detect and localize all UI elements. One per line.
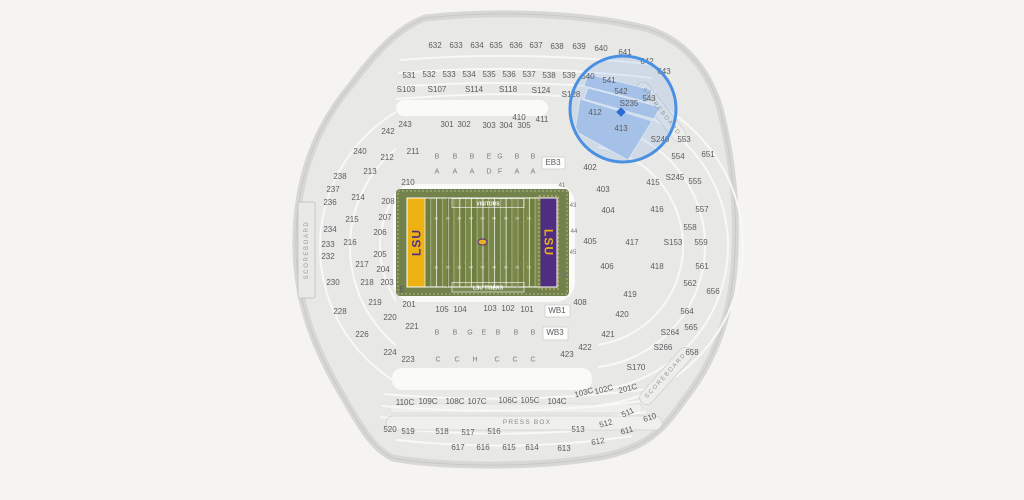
section-label[interactable]: 533 — [442, 71, 455, 79]
row-letter: C — [530, 357, 535, 364]
section-label[interactable]: 541 — [602, 77, 615, 85]
section-label[interactable]: 651 — [701, 151, 714, 159]
row-letter: B — [515, 154, 520, 161]
section-label[interactable]: 237 — [326, 186, 339, 194]
section-label[interactable]: 234 — [323, 226, 336, 234]
section-label[interactable]: S240 — [651, 136, 670, 144]
section-label[interactable]: S128 — [562, 91, 581, 99]
section-label[interactable]: 554 — [671, 153, 684, 161]
section-label[interactable]: 402 — [583, 164, 596, 172]
section-label[interactable]: 565 — [684, 324, 697, 332]
section-label[interactable]: 304 — [499, 122, 512, 130]
section-label[interactable]: 302 — [457, 121, 470, 129]
section-label[interactable]: 204 — [376, 266, 389, 274]
section-label[interactable]: 640 — [594, 45, 607, 53]
section-label[interactable]: 636 — [509, 42, 522, 50]
section-label[interactable]: S235 — [620, 100, 639, 108]
section-label[interactable]: 406 — [600, 263, 613, 271]
section-label[interactable]: 537 — [522, 71, 535, 79]
row-letter: G — [467, 330, 472, 337]
section-label[interactable]: 519 — [401, 428, 414, 436]
section-label[interactable]: 417 — [625, 239, 638, 247]
row-letter: G — [497, 154, 502, 161]
section-label[interactable]: 553 — [677, 136, 690, 144]
scoreboard-label: SCOREBOARD — [304, 221, 310, 280]
section-label[interactable]: 105C — [520, 397, 539, 405]
section-label[interactable]: 512 — [599, 418, 614, 429]
section-label[interactable]: 419 — [623, 291, 636, 299]
section-label[interactable]: 639 — [572, 43, 585, 51]
section-label[interactable]: 516 — [487, 428, 500, 436]
section-label[interactable]: 539 — [562, 72, 575, 80]
section-label[interactable]: 105 — [435, 306, 448, 314]
row-letter: D — [486, 169, 491, 176]
section-label[interactable]: 242 — [381, 128, 394, 136]
section-label[interactable]: 238 — [333, 173, 346, 181]
section-label[interactable]: 102C — [594, 384, 615, 397]
scoreboard-label: SCOREBOARD — [641, 87, 682, 137]
section-label[interactable]: 412 — [588, 109, 601, 117]
section-label[interactable]: 561 — [695, 263, 708, 271]
section-label[interactable]: 214 — [351, 194, 364, 202]
section-label[interactable]: 610 — [642, 412, 657, 424]
row-letter: B — [531, 330, 536, 337]
row-letter: A — [515, 169, 520, 176]
section-label[interactable]: 611 — [620, 425, 634, 436]
section-label[interactable]: 405 — [583, 238, 596, 246]
section-label[interactable]: 203 — [380, 279, 393, 287]
section-label[interactable]: EB3 — [545, 159, 560, 167]
row-letter: C — [435, 357, 440, 364]
row-letter: A — [453, 169, 458, 176]
section-label[interactable]: 423 — [560, 351, 573, 359]
section-label[interactable]: 220 — [383, 314, 396, 322]
section-label[interactable]: S245 — [666, 174, 685, 182]
section-label[interactable]: 110C — [396, 399, 415, 407]
section-label[interactable]: 632 — [428, 42, 441, 50]
row-letter: B — [453, 154, 458, 161]
row-letter: B — [470, 154, 475, 161]
section-label[interactable]: S114 — [465, 86, 483, 94]
section-label[interactable]: 223 — [401, 356, 414, 364]
section-label[interactable]: 101 — [520, 306, 533, 314]
section-label[interactable]: 243 — [398, 121, 411, 129]
section-label[interactable]: 520 — [383, 426, 396, 434]
section-label[interactable]: 104C — [547, 398, 566, 406]
portal-number: 46 — [561, 273, 568, 279]
section-label[interactable]: 408 — [573, 299, 586, 307]
portal-number: 45 — [570, 250, 577, 256]
portal-number: 43 — [570, 203, 577, 209]
row-letter: B — [453, 330, 458, 337]
row-letter: E — [482, 330, 487, 337]
section-label[interactable]: 226 — [355, 331, 368, 339]
section-label[interactable]: 555 — [688, 178, 701, 186]
section-label[interactable]: 420 — [615, 311, 628, 319]
section-label[interactable]: WB3 — [546, 329, 563, 337]
section-label[interactable]: 230 — [326, 279, 339, 287]
section-label[interactable]: 109C — [418, 398, 437, 406]
section-label[interactable]: 656 — [706, 288, 719, 296]
section-label[interactable]: 642 — [640, 58, 653, 66]
section-label[interactable]: 538 — [542, 72, 555, 80]
section-label[interactable]: 612 — [591, 437, 606, 447]
row-letter: A — [435, 169, 440, 176]
section-label[interactable]: 559 — [694, 239, 707, 247]
section-label[interactable]: 513 — [571, 426, 584, 434]
section-label[interactable]: E — [399, 286, 404, 294]
section-label[interactable]: 207 — [378, 214, 391, 222]
section-label[interactable]: S124 — [532, 87, 551, 95]
row-letter: C — [454, 357, 459, 364]
section-label[interactable]: 232 — [321, 253, 334, 261]
section-label[interactable]: 422 — [578, 344, 591, 352]
press-box-label: PRESS BOX — [503, 420, 551, 427]
section-label[interactable]: 210 — [401, 179, 414, 187]
row-letter: F — [498, 169, 502, 176]
section-label[interactable]: 613 — [557, 445, 570, 453]
section-label[interactable]: 224 — [383, 349, 396, 357]
section-label[interactable]: 517 — [461, 429, 474, 437]
section-label[interactable]: 404 — [601, 207, 614, 215]
section-labels-layer: 6326336346356366376386396406416426435315… — [0, 0, 1024, 500]
section-label[interactable]: 637 — [529, 42, 542, 50]
section-label[interactable]: 201C — [618, 383, 639, 396]
section-label[interactable]: 221 — [405, 323, 418, 331]
section-label[interactable]: 240 — [353, 148, 366, 156]
section-label[interactable]: 413 — [614, 125, 627, 133]
section-label[interactable]: 641 — [618, 49, 631, 57]
row-letter: B — [514, 330, 519, 337]
section-label[interactable]: 211 — [407, 148, 420, 156]
section-label[interactable]: 536 — [502, 71, 515, 79]
section-label[interactable]: 228 — [333, 308, 346, 316]
section-label[interactable]: 212 — [380, 154, 393, 162]
scoreboard-label: SCOREBOARD — [644, 352, 688, 400]
section-label[interactable]: 534 — [462, 71, 475, 79]
section-label[interactable]: 634 — [470, 42, 483, 50]
section-label[interactable]: 557 — [695, 206, 708, 214]
row-letter: E — [487, 154, 492, 161]
section-label[interactable]: 216 — [343, 239, 356, 247]
section-label[interactable]: 206 — [373, 229, 386, 237]
section-label[interactable]: 615 — [502, 444, 515, 452]
section-label[interactable]: S103 — [397, 86, 416, 94]
section-label[interactable]: S153 — [664, 239, 683, 247]
row-letter: B — [435, 154, 440, 161]
section-label[interactable]: 617 — [451, 444, 464, 452]
row-letter: A — [470, 169, 475, 176]
section-label[interactable]: S170 — [627, 364, 646, 372]
section-label[interactable]: 217 — [355, 261, 368, 269]
section-label[interactable]: 205 — [373, 251, 386, 259]
section-label[interactable]: 213 — [363, 168, 376, 176]
section-label[interactable]: 201 — [402, 301, 415, 309]
row-letter: B — [435, 330, 440, 337]
section-label[interactable]: 233 — [321, 241, 334, 249]
row-letter: B — [496, 330, 501, 337]
section-label[interactable]: 511 — [621, 407, 636, 420]
section-label[interactable]: 236 — [323, 199, 336, 207]
row-letter: C — [512, 357, 517, 364]
section-label[interactable]: 558 — [683, 224, 696, 232]
seating-map-canvas[interactable]: 101020203030404050504040303020201010 VIS… — [0, 0, 1024, 500]
section-label[interactable]: 532 — [422, 71, 435, 79]
section-label[interactable]: 562 — [683, 280, 696, 288]
section-label[interactable]: 540 — [581, 73, 594, 81]
section-label[interactable]: 108C — [445, 398, 464, 406]
section-label[interactable]: 103C — [574, 387, 595, 400]
section-label[interactable]: 421 — [601, 331, 614, 339]
section-label[interactable]: 219 — [368, 299, 381, 307]
section-label[interactable]: S118 — [499, 86, 517, 94]
section-label[interactable]: WB1 — [548, 307, 565, 315]
section-label[interactable]: S264 — [661, 329, 680, 337]
row-letter: C — [494, 357, 499, 364]
section-label[interactable]: 518 — [435, 428, 448, 436]
section-label[interactable]: 416 — [650, 206, 663, 214]
section-label[interactable]: 208 — [381, 198, 394, 206]
row-letter: B — [531, 154, 536, 161]
section-label[interactable]: 102 — [501, 305, 514, 313]
section-label[interactable]: 103 — [483, 305, 496, 313]
section-label[interactable]: 535 — [482, 71, 495, 79]
section-label[interactable]: 564 — [680, 308, 693, 316]
section-label[interactable]: 107C — [467, 398, 486, 406]
section-label[interactable]: 301 — [440, 121, 453, 129]
section-label[interactable]: 616 — [476, 444, 489, 452]
section-label[interactable]: 415 — [646, 179, 659, 187]
section-label[interactable]: S266 — [654, 344, 673, 352]
section-label[interactable]: 215 — [345, 216, 358, 224]
section-label[interactable]: 614 — [525, 444, 538, 452]
section-label[interactable]: 635 — [489, 42, 502, 50]
portal-number: 44 — [571, 229, 578, 235]
section-label[interactable]: 531 — [402, 72, 415, 80]
row-letter: H — [472, 357, 477, 364]
section-label[interactable]: 218 — [360, 279, 373, 287]
section-label[interactable]: 303 — [482, 122, 495, 130]
section-label[interactable]: 542 — [614, 88, 627, 96]
section-label[interactable]: 104 — [453, 306, 466, 314]
section-label[interactable]: 418 — [650, 263, 663, 271]
section-label[interactable]: 106C — [498, 397, 517, 405]
portal-number: 41 — [559, 183, 566, 189]
section-label[interactable]: S107 — [428, 86, 447, 94]
section-label[interactable]: 643 — [657, 68, 670, 76]
section-label[interactable]: 633 — [449, 42, 462, 50]
row-letter: A — [531, 169, 536, 176]
section-label[interactable]: 638 — [550, 43, 563, 51]
section-label[interactable]: 403 — [596, 186, 609, 194]
section-label[interactable]: 411 — [536, 116, 549, 124]
section-label[interactable]: 305 — [517, 122, 530, 130]
